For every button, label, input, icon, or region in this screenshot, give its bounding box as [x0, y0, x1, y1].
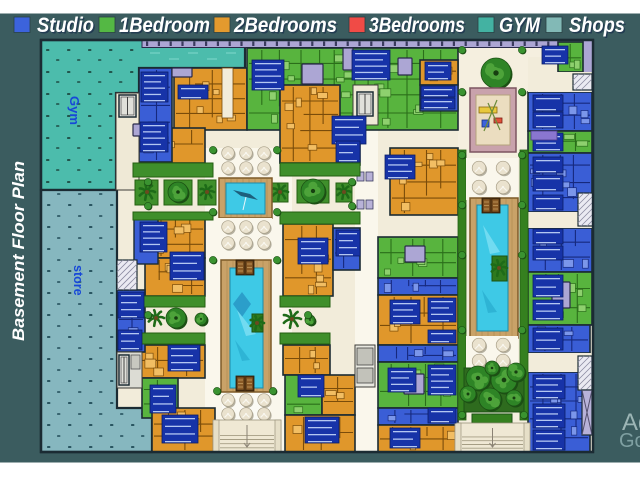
svg-text:Basement Floor Plan: Basement Floor Plan — [10, 161, 28, 341]
svg-text:2Bedrooms: 2Bedrooms — [233, 14, 337, 37]
svg-text:Gym: Gym — [67, 96, 82, 125]
svg-text:1Bedroom: 1Bedroom — [119, 14, 210, 37]
svg-text:Studio: Studio — [37, 14, 94, 37]
svg-text:Goo: Goo — [619, 430, 640, 452]
svg-text:Shops: Shops — [569, 14, 625, 37]
svg-text:store: store — [71, 265, 85, 296]
svg-text:3Bedrooms: 3Bedrooms — [369, 14, 465, 37]
svg-text:GYM: GYM — [499, 14, 540, 37]
